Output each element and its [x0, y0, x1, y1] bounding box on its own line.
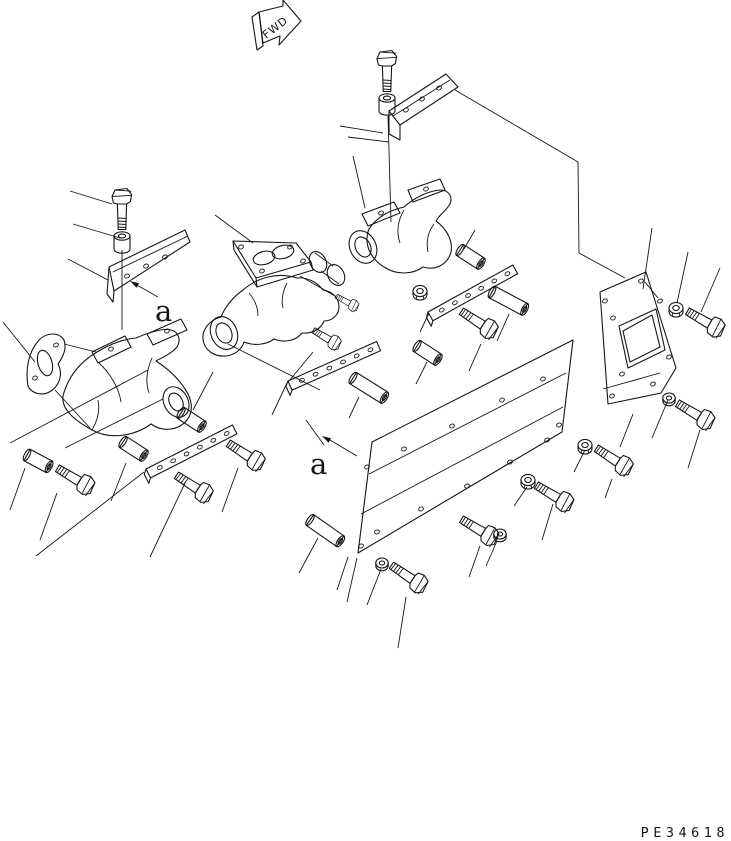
- hex-bolt-10: [456, 303, 501, 342]
- hex-bolt-left: [112, 189, 132, 230]
- connector-sleeve-5: [22, 448, 55, 474]
- connector-sleeve-2: [347, 371, 390, 404]
- section-label-a1: a: [155, 294, 172, 328]
- connector-sleeve-8: [454, 243, 487, 270]
- stud-small-1: [310, 324, 344, 352]
- end-plate-with-square-opening: [600, 272, 676, 404]
- heat-shield-plate-top: [389, 74, 458, 140]
- washer-1: [663, 393, 675, 406]
- nut-top: [379, 94, 395, 115]
- exhaust-manifold-center: [203, 241, 348, 356]
- hex-bolt-2: [223, 435, 268, 474]
- section-marker-a1: a: [130, 281, 172, 328]
- connector-sleeve-1: [411, 339, 444, 366]
- washer-2: [494, 529, 506, 542]
- stud-small-2: [333, 291, 360, 313]
- nut-left: [114, 232, 130, 253]
- side-cover-panel: [358, 340, 573, 553]
- section-marker-a2: a: [310, 436, 357, 481]
- connector-sleeve-6: [304, 513, 346, 548]
- exhaust-manifold-left: [63, 319, 194, 436]
- seal-strip-3: [425, 265, 520, 326]
- hex-bolt-7: [683, 303, 728, 340]
- hex-bolt-1: [52, 460, 97, 498]
- nut-3: [521, 474, 535, 489]
- connector-sleeve-7: [487, 285, 531, 316]
- washer-3: [376, 558, 388, 571]
- parts-diagram: FWD: [0, 0, 731, 841]
- hex-bolt-3: [171, 467, 216, 506]
- nut-4: [413, 285, 427, 300]
- leader-lines: [3, 90, 720, 648]
- section-label-a2: a: [310, 447, 327, 481]
- inlet-flange-plate: [27, 334, 96, 428]
- hex-bolt-8: [672, 395, 717, 433]
- hex-bolt-top: [377, 51, 397, 92]
- nut-2: [578, 439, 592, 454]
- nut-1: [669, 302, 683, 317]
- drawing-number: PE34618: [641, 825, 729, 841]
- connector-sleeve-4: [117, 435, 150, 462]
- seal-strip-1: [142, 425, 238, 483]
- hex-bolt-4: [386, 557, 431, 596]
- fwd-arrow: FWD: [252, 0, 301, 50]
- hex-bolt-9: [456, 511, 501, 549]
- hex-bolt-5: [531, 477, 576, 515]
- exhaust-manifold-right: [344, 179, 452, 273]
- hex-bolt-6: [591, 440, 636, 479]
